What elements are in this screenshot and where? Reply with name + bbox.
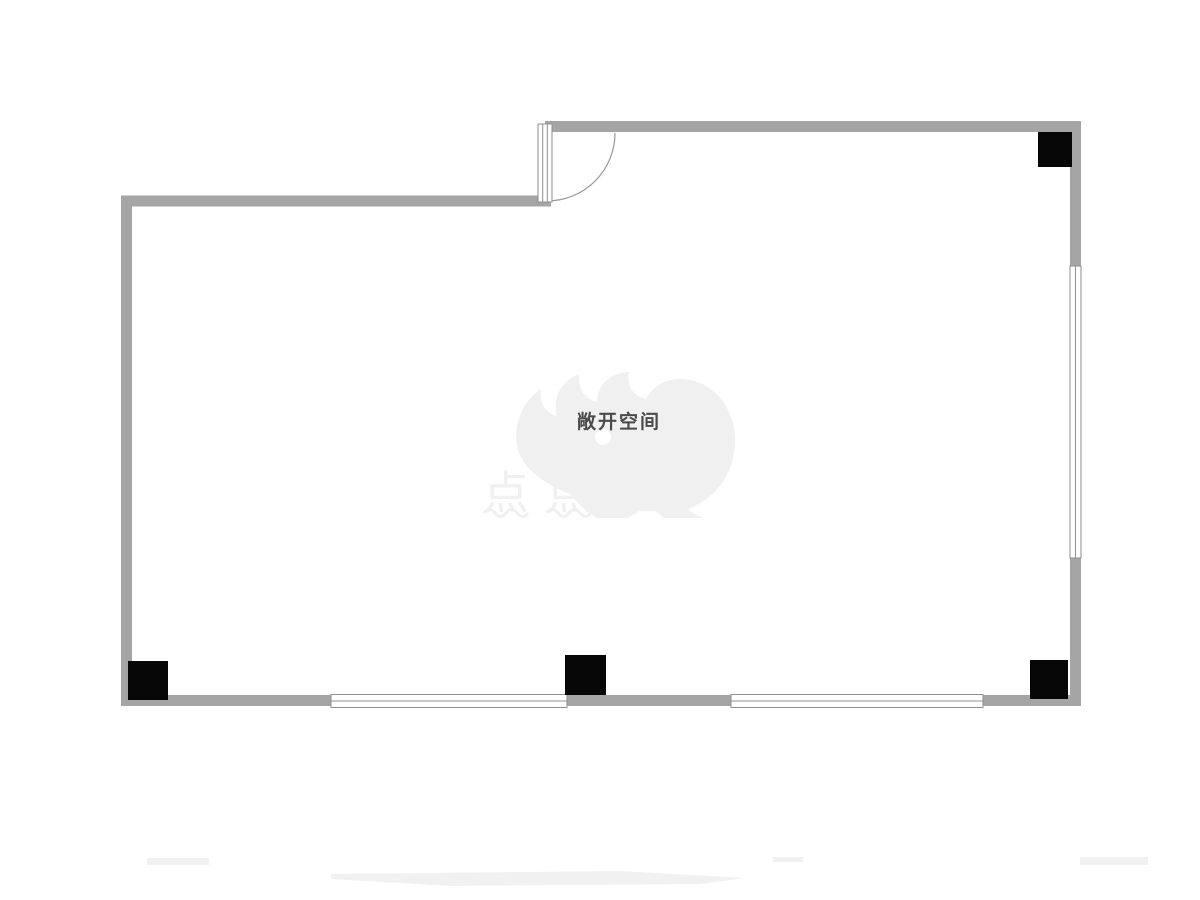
floor-plan-page: 点点租 [0, 0, 1200, 900]
window-right-wall [1070, 266, 1081, 558]
smudge-bar-mid [773, 857, 803, 862]
door-swing-arc [547, 133, 615, 201]
column-top-right [1038, 132, 1072, 167]
smudge-artifacts [147, 857, 1148, 886]
column-bottom-center [565, 655, 606, 695]
window-bottom-right [731, 695, 983, 708]
door [538, 124, 615, 202]
room-label: 敞开空间 [577, 410, 661, 433]
smudge-band-center [330, 871, 745, 886]
door-leaf-frame [538, 124, 552, 202]
floor-plan-canvas: 点点租 [0, 0, 1200, 900]
window-bottom-left [331, 695, 567, 708]
column-bottom-left [128, 661, 168, 700]
smudge-bar-right [1080, 857, 1148, 865]
column-bottom-right [1030, 660, 1068, 699]
door-leaf [538, 124, 552, 202]
smudge-bar-left [147, 858, 209, 865]
